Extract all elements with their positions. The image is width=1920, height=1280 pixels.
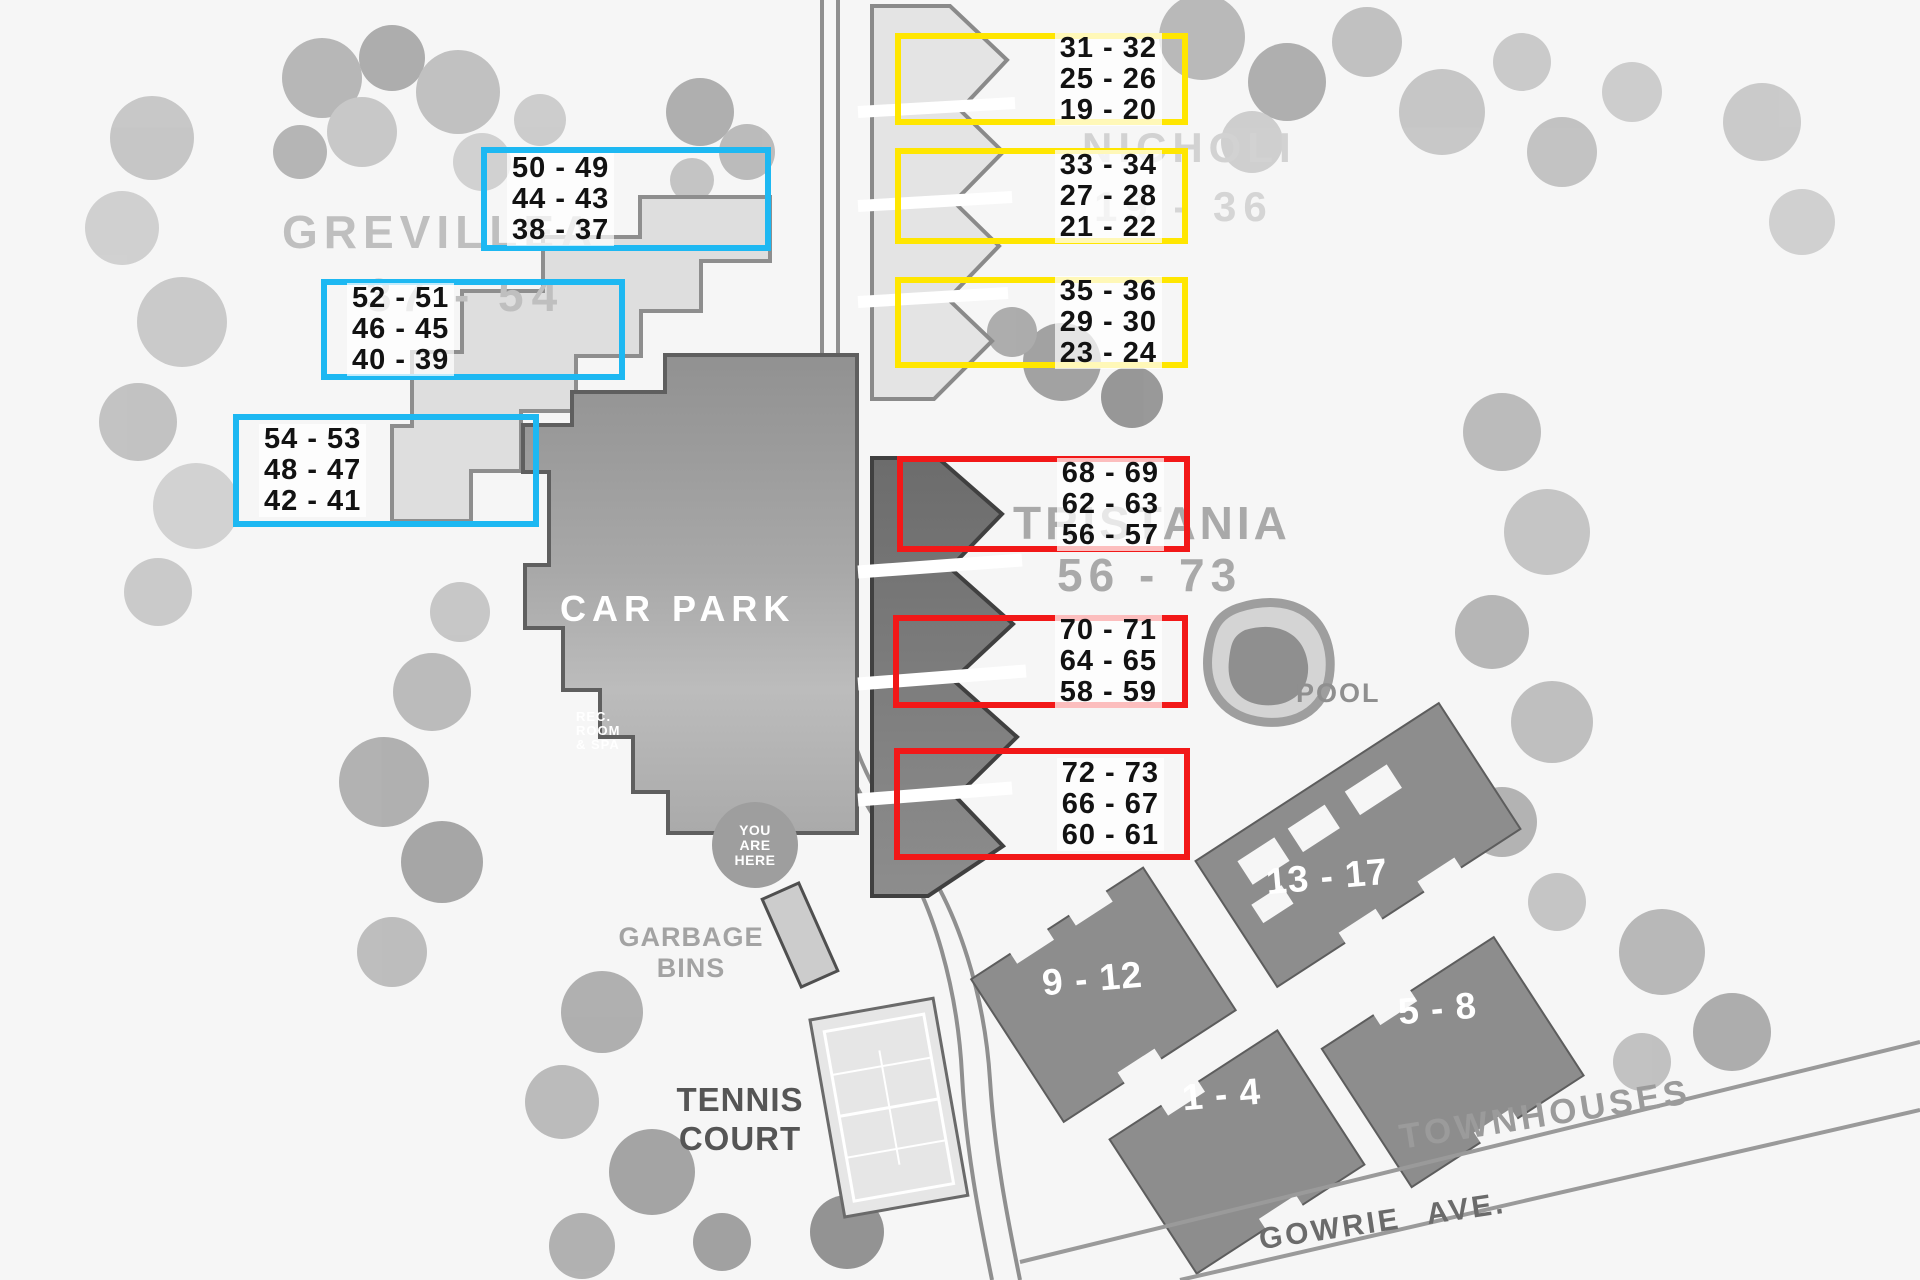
- unit-range: 48 - 47: [259, 455, 366, 486]
- block-label-1-4: 1 - 4: [1180, 1071, 1262, 1120]
- you-are-here-marker: YOU ARE HERE: [712, 802, 798, 888]
- tennis-court-label: TENNIS COURT: [655, 1080, 825, 1158]
- unit-range: 44 - 43: [507, 184, 614, 215]
- unit-range: 23 - 24: [1055, 338, 1162, 369]
- unit-range: 58 - 59: [1055, 677, 1162, 708]
- unit-range: 50 - 49: [507, 153, 614, 184]
- unit-range: 31 - 32: [1055, 33, 1162, 64]
- rec-room-label: REC. ROOM & SPA: [576, 710, 620, 752]
- unit-range: 19 - 20: [1055, 95, 1162, 126]
- unit-box-tristania-3[interactable]: 72 - 73 66 - 67 60 - 61: [894, 748, 1190, 860]
- unit-range: 42 - 41: [259, 486, 366, 517]
- unit-range: 60 - 61: [1057, 820, 1164, 851]
- car-park-label: CAR PARK: [560, 588, 795, 630]
- block-label-9-12: 9 - 12: [1040, 954, 1144, 1005]
- unit-range: 25 - 26: [1055, 64, 1162, 95]
- unit-range: 35 - 36: [1055, 276, 1162, 307]
- unit-range: 52 - 51: [347, 283, 454, 314]
- unit-range: 64 - 65: [1055, 646, 1162, 677]
- unit-box-grevillea-2[interactable]: 52 - 51 46 - 45 40 - 39: [321, 279, 625, 380]
- unit-range: 56 - 57: [1057, 520, 1164, 551]
- tennis-court-shape: [810, 998, 968, 1217]
- unit-box-nicholi-2[interactable]: 33 - 34 27 - 28 21 - 22: [895, 148, 1188, 244]
- unit-range: 70 - 71: [1055, 615, 1162, 646]
- unit-range: 33 - 34: [1055, 150, 1162, 181]
- unit-range: 66 - 67: [1057, 789, 1164, 820]
- unit-range: 27 - 28: [1055, 181, 1162, 212]
- block-label-5-8: 5 - 8: [1396, 985, 1478, 1034]
- garbage-bins-label: GARBAGE BINS: [596, 922, 786, 984]
- unit-range: 72 - 73: [1057, 758, 1164, 789]
- unit-range: 62 - 63: [1057, 489, 1164, 520]
- unit-box-nicholi-3[interactable]: 35 - 36 29 - 30 23 - 24: [895, 277, 1188, 368]
- pool-label: POOL: [1296, 678, 1381, 709]
- unit-box-grevillea-3[interactable]: 54 - 53 48 - 47 42 - 41: [233, 414, 539, 527]
- unit-range: 21 - 22: [1055, 212, 1162, 243]
- unit-box-tristania-1[interactable]: 68 - 69 62 - 63 56 - 57: [897, 456, 1190, 552]
- unit-box-nicholi-1[interactable]: 31 - 32 25 - 26 19 - 20: [895, 33, 1188, 125]
- section-range-tristania: 56 - 73: [1057, 548, 1242, 602]
- unit-box-tristania-2[interactable]: 70 - 71 64 - 65 58 - 59: [893, 615, 1188, 708]
- unit-range: 68 - 69: [1057, 458, 1164, 489]
- unit-range: 40 - 39: [347, 345, 454, 376]
- unit-range: 38 - 37: [507, 215, 614, 246]
- resort-site-map: GREVILLEA 37 - 54 NICHOLI 19 - 36 TRISTA…: [0, 0, 1920, 1280]
- unit-range: 54 - 53: [259, 424, 366, 455]
- unit-range: 29 - 30: [1055, 307, 1162, 338]
- unit-box-grevillea-1[interactable]: 50 - 49 44 - 43 38 - 37: [481, 147, 771, 251]
- unit-range: 46 - 45: [347, 314, 454, 345]
